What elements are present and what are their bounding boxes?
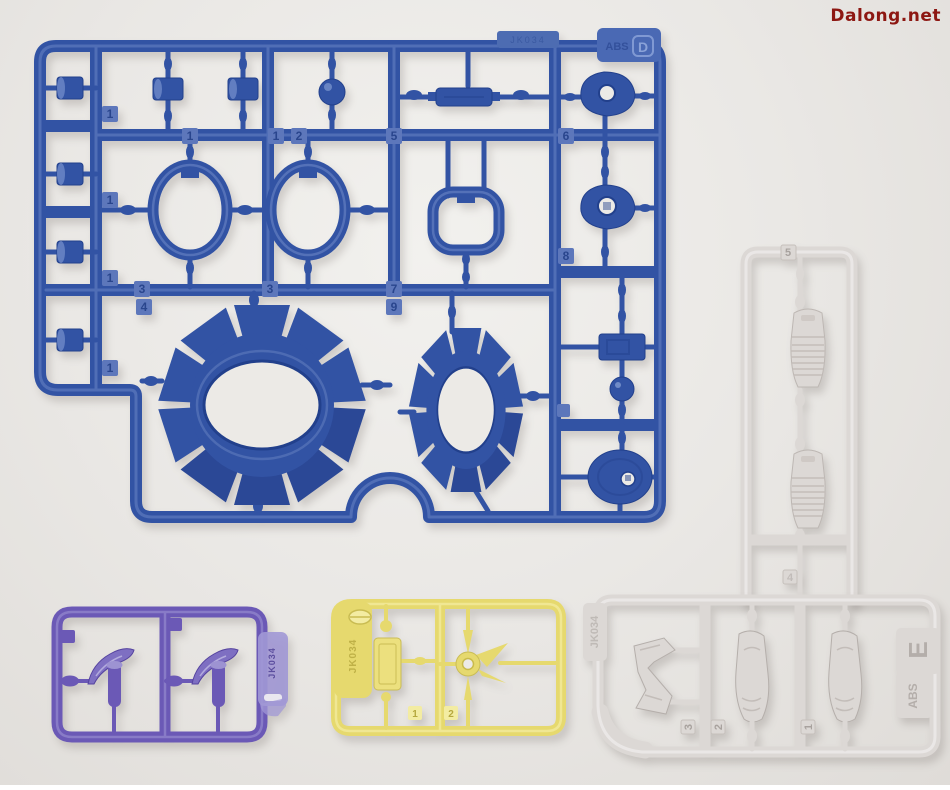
mold-code-text-white: JK034 xyxy=(589,615,601,648)
mold-code-tab-yellow: JK034 xyxy=(334,602,372,698)
part-number-tag: 1 xyxy=(801,720,815,734)
part-number-tag: 5 xyxy=(386,128,402,144)
cylinder-part xyxy=(57,163,83,185)
svg-text:2: 2 xyxy=(713,724,725,730)
part-number-tag: 1 xyxy=(102,106,118,122)
runner-letter-white: E xyxy=(903,641,933,658)
material-label-blue: ABS xyxy=(605,41,628,53)
bracket-part xyxy=(634,638,700,714)
flat-connector-part xyxy=(428,88,500,106)
cylinder-part xyxy=(57,241,83,263)
svg-text:5: 5 xyxy=(785,247,791,259)
chest-plate-part xyxy=(374,606,436,728)
svg-text:2: 2 xyxy=(296,129,303,143)
svg-text:5: 5 xyxy=(391,129,398,143)
part-number-tag: 4 xyxy=(136,299,152,315)
oval-ring-part-2 xyxy=(271,141,388,287)
mold-code-text-yellow: JK034 xyxy=(348,639,359,673)
part-number-tag: 2 xyxy=(444,706,458,720)
mold-code-tab-purple: JK034 xyxy=(258,632,288,716)
blank-tab xyxy=(60,630,75,643)
svg-text:3: 3 xyxy=(139,282,146,296)
square-ring-part xyxy=(433,141,499,287)
sprue-scene: JK034 ABS D xyxy=(0,0,950,785)
runner-letter-plate-blue: ABS D xyxy=(597,28,661,62)
svg-text:1: 1 xyxy=(273,129,280,143)
svg-text:4: 4 xyxy=(141,300,148,314)
svg-text:1: 1 xyxy=(107,193,114,207)
runner-yellow: JK034 1 2 xyxy=(334,602,561,731)
thruster-part-1 xyxy=(791,309,825,387)
part-number-tag: 3 xyxy=(262,281,278,297)
runner-purple: JK034 xyxy=(57,612,288,737)
watermark: Dalong.net xyxy=(830,6,941,26)
svg-text:3: 3 xyxy=(683,724,695,730)
material-label-white: ABS xyxy=(906,683,920,708)
svg-text:1: 1 xyxy=(107,271,114,285)
cylinder-part xyxy=(153,78,183,100)
runner-blue: JK034 ABS D xyxy=(40,28,661,517)
svg-text:1: 1 xyxy=(187,129,194,143)
part-number-tag: 2 xyxy=(711,720,725,734)
runner-letter-blue: D xyxy=(638,39,648,55)
cylinder-part xyxy=(228,78,258,100)
runner-white-tall: 5 4 xyxy=(746,245,852,600)
blank-tab xyxy=(557,404,570,417)
svg-text:7: 7 xyxy=(391,282,398,296)
mold-code-text-purple: JK034 xyxy=(267,647,277,679)
svg-text:1: 1 xyxy=(107,361,114,375)
blade-and-pin-parts-2 xyxy=(165,649,238,731)
part-number-tag: 5 xyxy=(781,245,796,260)
sprue-photo-background: JK034 ABS D xyxy=(0,0,950,785)
small-fan-gear-part xyxy=(400,293,549,511)
dome-part xyxy=(561,425,655,511)
cylinder-part xyxy=(57,77,83,99)
blade-and-pin-parts-1 xyxy=(61,649,134,731)
part-number-tag: 6 xyxy=(558,128,574,144)
mold-code-tab-blue: JK034 xyxy=(497,31,559,48)
part-number-tag: 3 xyxy=(134,281,150,297)
svg-text:4: 4 xyxy=(787,572,794,584)
mold-code-text-blue: JK034 xyxy=(510,35,546,45)
svg-text:1: 1 xyxy=(412,709,418,720)
part-number-tag: 1 xyxy=(268,128,284,144)
thruster-part-2 xyxy=(791,450,825,528)
part-number-tag: 2 xyxy=(291,128,307,144)
top-band-parts xyxy=(153,52,549,129)
cylinder-part xyxy=(57,329,83,351)
svg-text:9: 9 xyxy=(391,300,398,314)
teardrop-part-2 xyxy=(581,135,654,272)
svg-text:3: 3 xyxy=(267,282,274,296)
part-number-tag: 4 xyxy=(783,570,797,584)
part-number-tag: 8 xyxy=(558,248,574,264)
blank-tab xyxy=(168,618,182,631)
runner-purple-frame xyxy=(57,612,262,737)
part-number-tag: 1 xyxy=(102,360,118,376)
part-number-tag: 7 xyxy=(386,281,402,297)
svg-text:2: 2 xyxy=(448,709,454,720)
svg-text:1: 1 xyxy=(107,107,114,121)
part-number-tag: 9 xyxy=(386,299,402,315)
part-number-tag: 1 xyxy=(102,192,118,208)
part-number-tag: 3 xyxy=(681,720,695,734)
part-number-tag: 1 xyxy=(102,270,118,286)
oval-ring-part-1 xyxy=(102,141,262,287)
mold-code-tab-white: JK034 xyxy=(583,603,607,661)
part-number-tag: 1 xyxy=(408,706,422,720)
svg-text:8: 8 xyxy=(563,249,570,263)
runner-white-bottom: JK034 E ABS 3 2 xyxy=(583,600,940,752)
big-fan-gear-part xyxy=(142,293,390,513)
ball-joint-part xyxy=(319,79,345,105)
teardrop-part-1 xyxy=(561,72,654,135)
svg-text:6: 6 xyxy=(563,129,570,143)
small-bracket-ball-part xyxy=(561,272,654,425)
foot-part-2 xyxy=(829,604,862,749)
part-number-tag: 1 xyxy=(182,128,198,144)
svg-text:1: 1 xyxy=(803,724,815,730)
foot-part-1 xyxy=(736,604,769,749)
